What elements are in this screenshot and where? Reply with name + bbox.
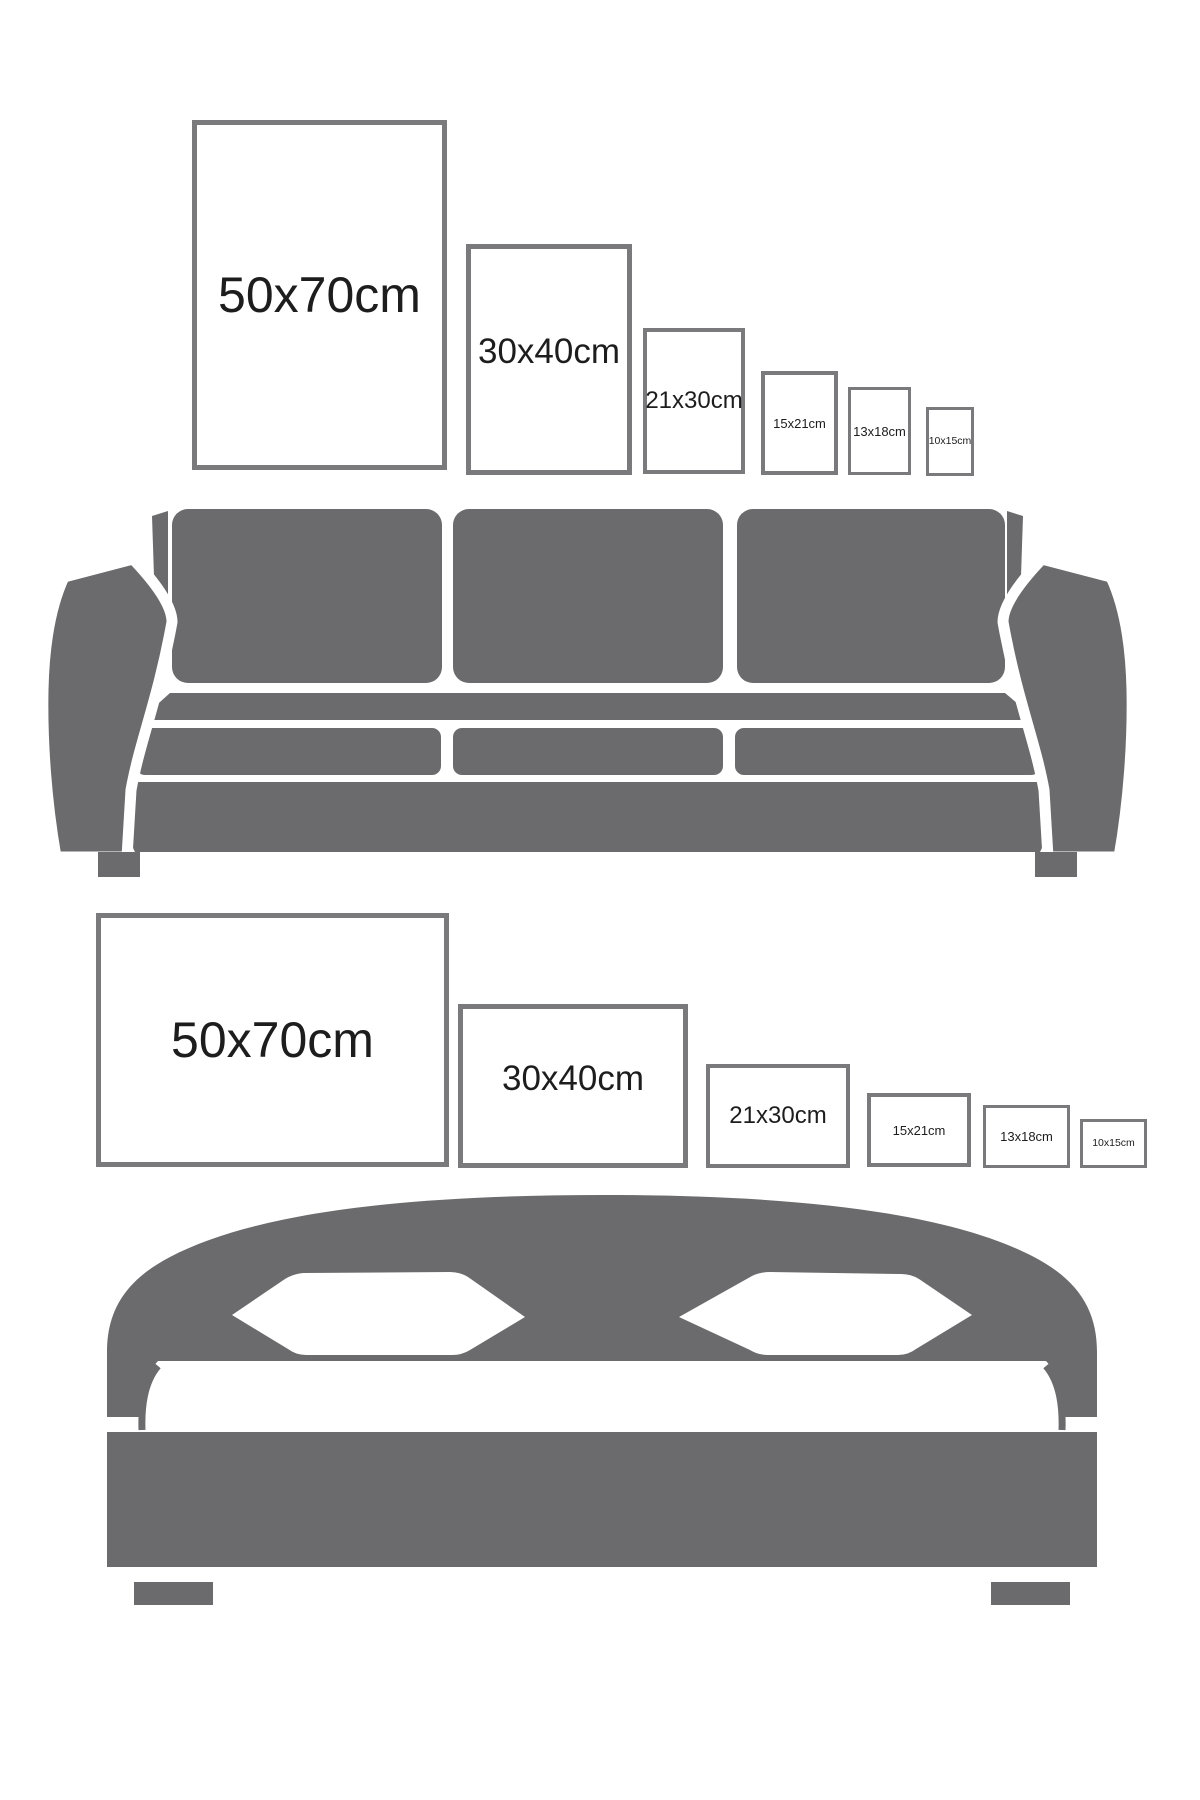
sofa-icon xyxy=(43,509,1132,877)
bed-icon xyxy=(107,1195,1097,1605)
furniture-illustrations xyxy=(0,0,1200,1800)
frame-size-guide: 50x70cm 30x40cm 21x30cm 15x21cm 13x18cm … xyxy=(0,0,1200,1800)
